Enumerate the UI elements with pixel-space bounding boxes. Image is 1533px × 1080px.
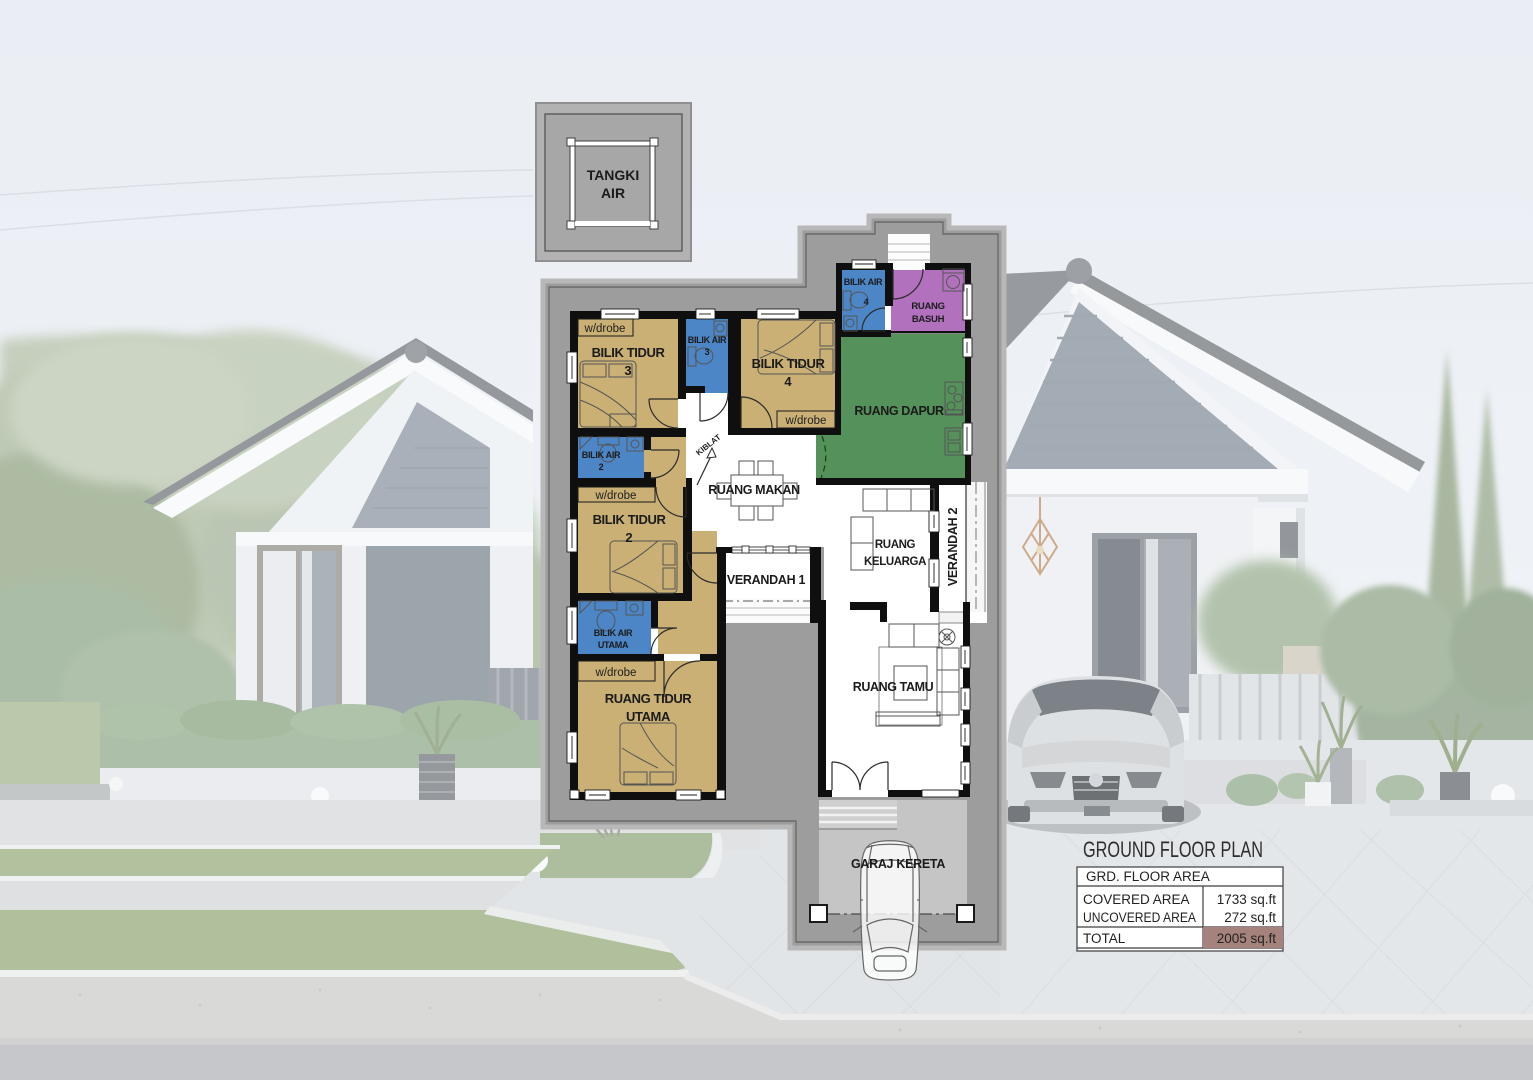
svg-text:w/drobe: w/drobe xyxy=(785,415,827,427)
svg-text:2: 2 xyxy=(599,462,604,472)
svg-text:AIR: AIR xyxy=(601,185,625,201)
svg-text:RUANG: RUANG xyxy=(911,301,944,312)
svg-text:BILIK AIR: BILIK AIR xyxy=(582,450,621,460)
svg-text:BILIK AIR: BILIK AIR xyxy=(688,335,727,345)
svg-text:TANGKI: TANGKI xyxy=(587,167,640,183)
svg-text:VERANDAH 2: VERANDAH 2 xyxy=(946,508,960,587)
svg-text:UTAMA: UTAMA xyxy=(626,709,671,724)
svg-text:BILIK AIR: BILIK AIR xyxy=(844,277,883,287)
svg-text:UTAMA: UTAMA xyxy=(598,640,629,650)
svg-text:COVERED AREA: COVERED AREA xyxy=(1083,892,1190,907)
svg-text:RUANG TAMU: RUANG TAMU xyxy=(853,680,934,694)
svg-text:UNCOVERED AREA: UNCOVERED AREA xyxy=(1083,910,1196,925)
svg-text:4: 4 xyxy=(784,374,792,389)
svg-text:RUANG DAPUR: RUANG DAPUR xyxy=(854,404,944,418)
svg-text:BILIK AIR: BILIK AIR xyxy=(594,628,633,638)
svg-text:GARAJ KERETA: GARAJ KERETA xyxy=(851,857,945,871)
svg-text:1733 sq.ft: 1733 sq.ft xyxy=(1217,892,1277,907)
svg-text:GRD. FLOOR AREA: GRD. FLOOR AREA xyxy=(1086,869,1210,884)
svg-text:w/drobe: w/drobe xyxy=(595,490,637,502)
svg-text:GROUND FLOOR PLAN: GROUND FLOOR PLAN xyxy=(1083,837,1263,862)
svg-text:RUANG TIDUR: RUANG TIDUR xyxy=(605,691,693,706)
svg-text:3: 3 xyxy=(705,347,710,357)
svg-text:3: 3 xyxy=(624,363,631,378)
svg-text:272 sq.ft: 272 sq.ft xyxy=(1224,910,1276,925)
svg-text:2: 2 xyxy=(625,530,632,545)
svg-text:2005 sq.ft: 2005 sq.ft xyxy=(1217,931,1277,946)
svg-text:RUANG: RUANG xyxy=(875,539,916,551)
svg-text:RUANG MAKAN: RUANG MAKAN xyxy=(708,483,800,497)
svg-text:BILIK TIDUR: BILIK TIDUR xyxy=(592,345,666,360)
svg-text:BILIK TIDUR: BILIK TIDUR xyxy=(593,512,667,527)
svg-text:4: 4 xyxy=(864,297,869,307)
svg-text:VERANDAH 1: VERANDAH 1 xyxy=(727,573,806,587)
svg-text:w/drobe: w/drobe xyxy=(595,667,637,679)
svg-text:w/drobe: w/drobe xyxy=(584,323,626,335)
svg-text:BASUH: BASUH xyxy=(912,314,945,325)
svg-text:BILIK TIDUR: BILIK TIDUR xyxy=(752,356,826,371)
svg-text:TOTAL: TOTAL xyxy=(1083,931,1126,946)
svg-text:KELUARGA: KELUARGA xyxy=(864,556,926,568)
